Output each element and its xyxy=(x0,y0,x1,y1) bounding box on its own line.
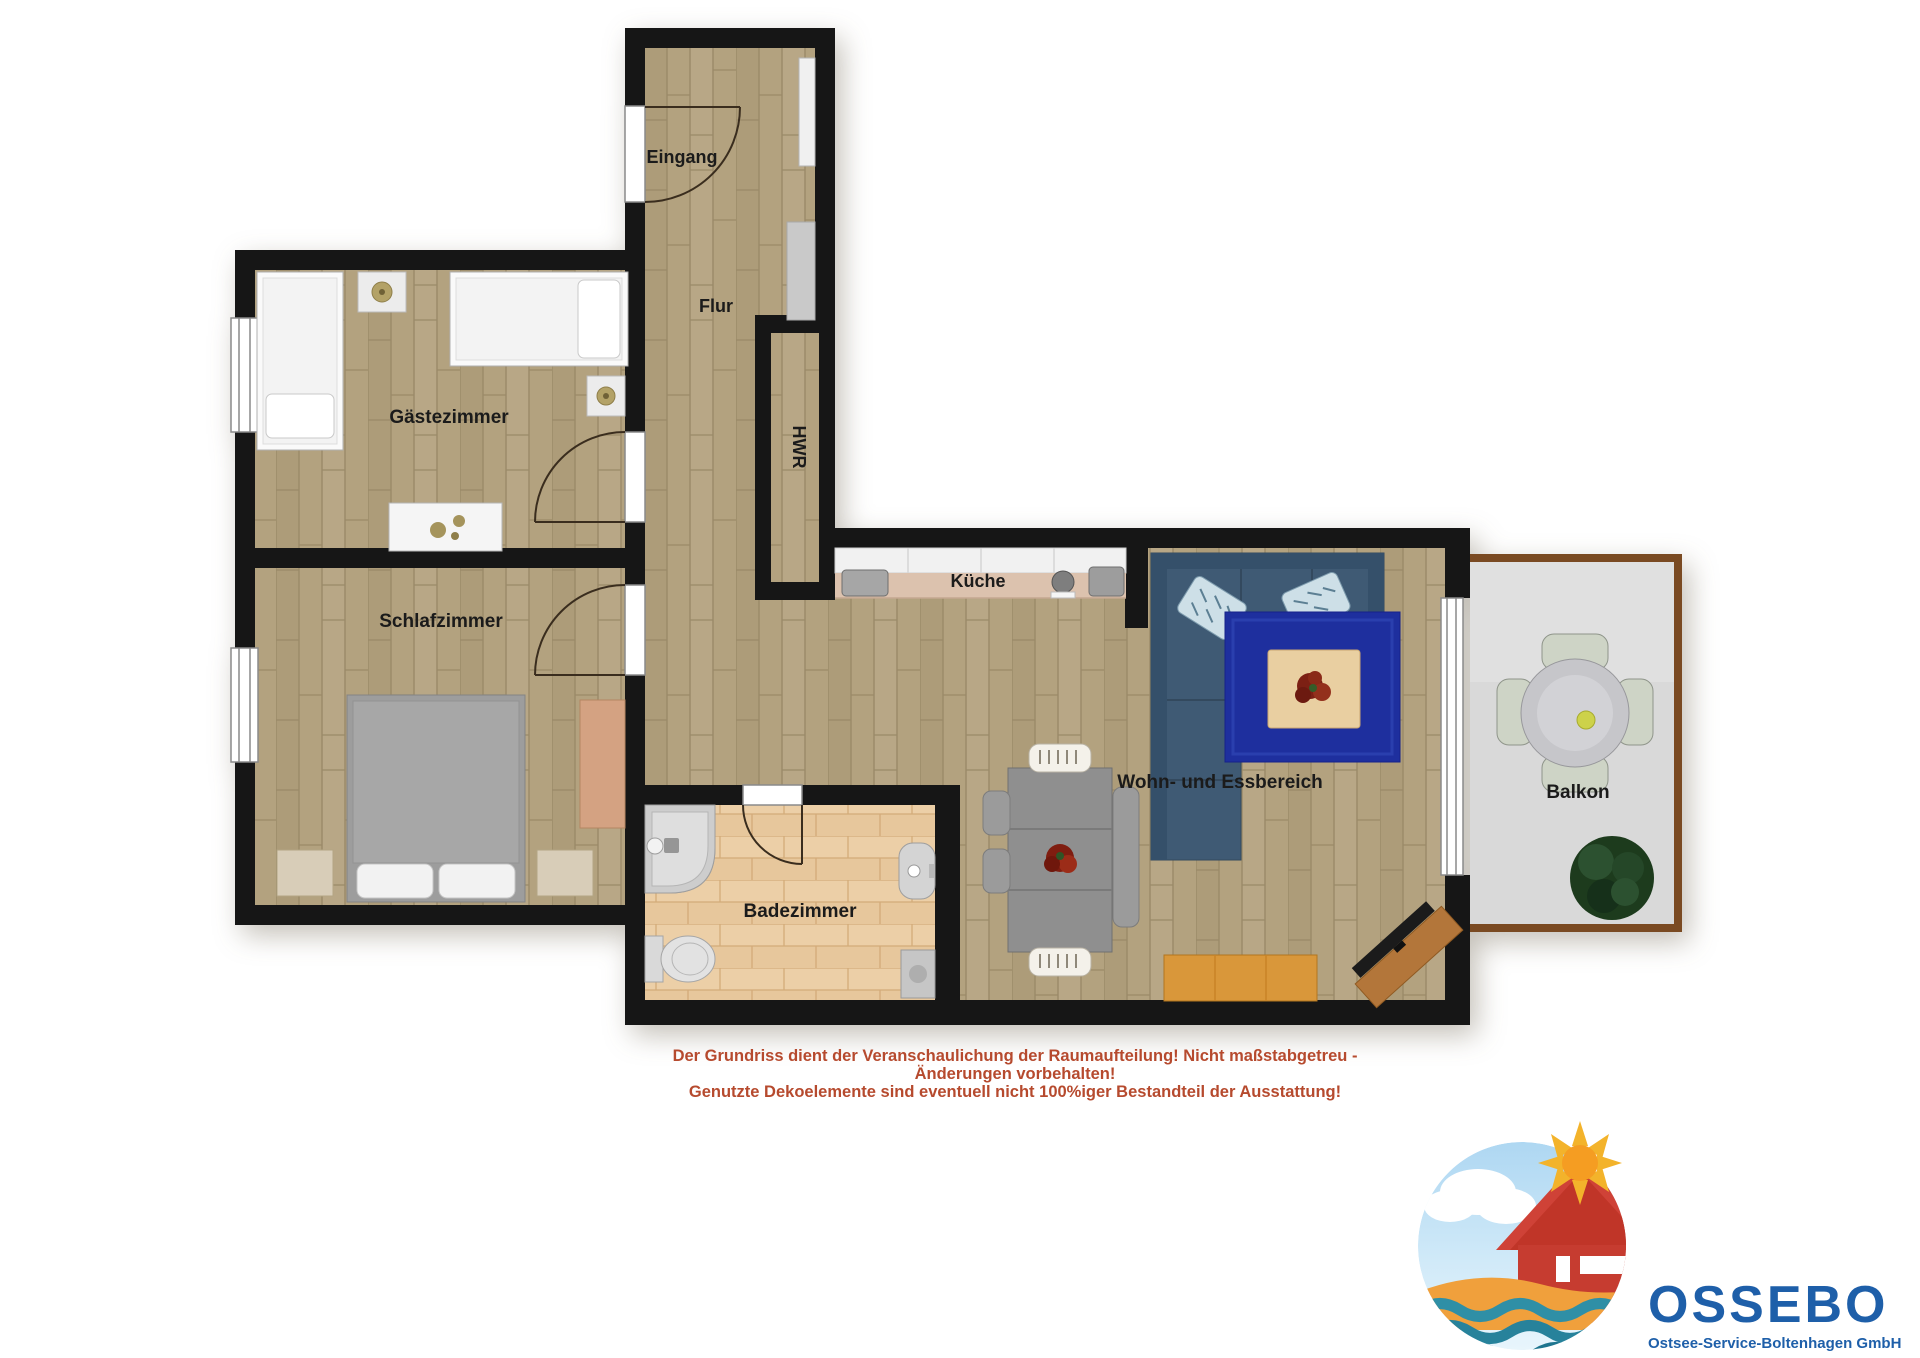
hallway-wardrobe xyxy=(787,222,815,320)
disclaimer-line-1: Der Grundriss dient der Veranschaulichun… xyxy=(673,1047,1358,1065)
window-guestroom xyxy=(231,318,258,432)
nightstand-left xyxy=(358,272,406,312)
window-balcony xyxy=(1441,598,1463,875)
company-logo: OSSEBO Ostsee-Service-Boltenhagen GmbH xyxy=(1418,1121,1901,1358)
floor-plan-svg: Eingang Flur HWR Gästezimmer Schlafzimme… xyxy=(0,0,1920,1358)
wall-bath-right xyxy=(935,785,960,1025)
kitchen-stove xyxy=(842,570,888,596)
label-gaestezimmer: Gästezimmer xyxy=(389,407,509,428)
label-balkon: Balkon xyxy=(1546,782,1609,803)
wall-guest-top xyxy=(235,250,645,270)
logo-subtitle: Ostsee-Service-Boltenhagen GmbH xyxy=(1648,1335,1901,1352)
disclaimer-text: Der Grundriss dient der Veranschaulichun… xyxy=(673,1047,1358,1101)
label-wohn-essbereich: Wohn- und Essbereich xyxy=(1117,772,1323,793)
wall-hallway-top xyxy=(625,28,835,48)
balcony-frame-bottom xyxy=(1470,924,1682,932)
label-kueche: Küche xyxy=(950,571,1005,591)
balcony-table xyxy=(1521,659,1629,767)
wall-bottom xyxy=(625,1000,1470,1025)
wall-hallway-right xyxy=(815,28,835,328)
hallway-radiator xyxy=(799,58,815,166)
single-bed-left xyxy=(257,272,343,450)
wall-kitchen-stub xyxy=(1125,528,1148,628)
kitchen-appliance xyxy=(1089,567,1124,596)
balcony-plant xyxy=(1570,836,1654,920)
wall-right-upper xyxy=(1445,528,1470,598)
bathroom-sink xyxy=(899,843,935,899)
disclaimer-line-2: Änderungen vorbehalten! xyxy=(915,1065,1116,1083)
double-bed xyxy=(347,695,525,902)
window-bedroom xyxy=(231,648,258,762)
label-eingang: Eingang xyxy=(647,147,718,167)
logo-emblem xyxy=(1418,1142,1666,1358)
bedroom-nightstand-left xyxy=(277,850,333,896)
floor-plan: Eingang Flur HWR Gästezimmer Schlafzimme… xyxy=(231,28,1682,1025)
kitchen-sink xyxy=(1052,571,1074,593)
kitchen-faucet xyxy=(1051,592,1075,598)
nightstand-right xyxy=(587,376,625,416)
dining-bench xyxy=(1113,787,1139,927)
label-hwr: HWR xyxy=(789,426,809,469)
toilet xyxy=(645,936,715,982)
label-flur: Flur xyxy=(699,296,733,316)
dining-chair-top xyxy=(1029,744,1091,772)
disclaimer-line-3: Genutzte Dekoelemente sind eventuell nic… xyxy=(689,1083,1341,1101)
sideboard xyxy=(1164,955,1317,1001)
label-badezimmer: Badezimmer xyxy=(744,901,858,922)
logo-company-name: OSSEBO xyxy=(1648,1276,1889,1334)
bathroom-cabinet xyxy=(901,950,935,998)
guestroom-dresser xyxy=(389,503,502,551)
wall-bath-left xyxy=(625,785,645,1025)
balcony-frame-right xyxy=(1674,554,1682,932)
bedroom-desk xyxy=(580,700,625,828)
dining-chair-left-2 xyxy=(983,849,1010,893)
single-bed-top xyxy=(450,272,628,366)
dining-chair-bottom xyxy=(1029,948,1091,976)
balcony-frame-top xyxy=(1470,554,1682,562)
label-schlafzimmer: Schlafzimmer xyxy=(379,611,503,632)
floorplan-page: Eingang Flur HWR Gästezimmer Schlafzimme… xyxy=(0,0,1920,1358)
coffee-table xyxy=(1268,650,1360,728)
bedroom-nightstand-right xyxy=(537,850,593,896)
wall-bedroom-bottom xyxy=(235,905,645,925)
shower xyxy=(645,805,715,893)
dining-chair-left-1 xyxy=(983,791,1010,835)
